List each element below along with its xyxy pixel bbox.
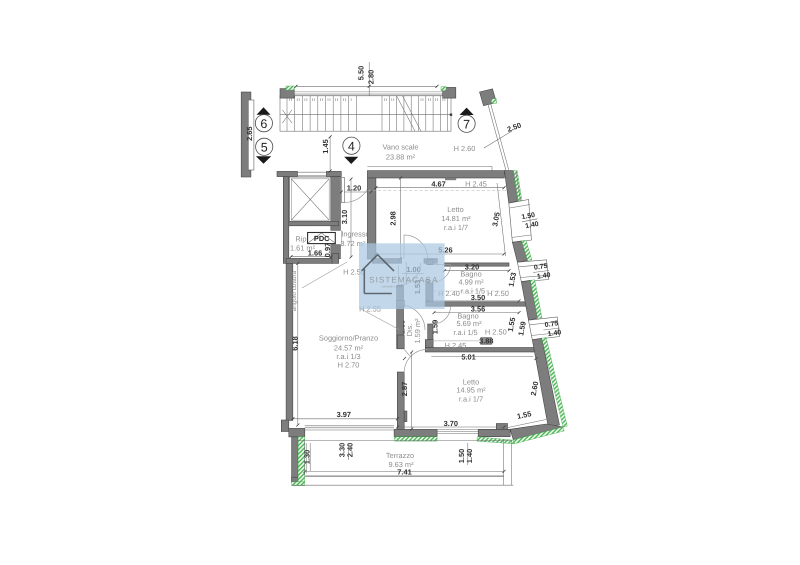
- svg-text:PDC: PDC: [314, 234, 330, 243]
- svg-text:Letto: Letto: [447, 205, 463, 214]
- svg-text:14.81 m²: 14.81 m²: [441, 214, 471, 223]
- svg-text:1.45: 1.45: [321, 139, 330, 153]
- svg-text:H 2.45: H 2.45: [465, 179, 487, 188]
- svg-text:4: 4: [348, 139, 355, 153]
- svg-text:0.97: 0.97: [323, 243, 332, 257]
- svg-text:Terrazzo: Terrazzo: [386, 451, 414, 460]
- svg-text:H 2.50: H 2.50: [485, 327, 507, 336]
- svg-text:4.67: 4.67: [431, 179, 445, 188]
- svg-text:Vano scale: Vano scale: [382, 143, 418, 152]
- svg-text:7: 7: [463, 117, 470, 131]
- svg-text:4.99 m²: 4.99 m²: [458, 278, 484, 287]
- svg-text:r.a.i 1/7: r.a.i 1/7: [459, 395, 483, 404]
- svg-text:H 2.60: H 2.60: [454, 144, 476, 153]
- svg-text:angolo cottura: angolo cottura: [291, 270, 298, 311]
- svg-text:SISTEMACASA: SISTEMACASA: [369, 276, 438, 285]
- svg-text:2.98: 2.98: [389, 211, 398, 225]
- svg-text:2.40: 2.40: [345, 443, 354, 457]
- svg-text:1.20: 1.20: [347, 184, 361, 193]
- svg-text:3.88: 3.88: [479, 337, 493, 346]
- svg-text:r.a.i 1/7: r.a.i 1/7: [444, 223, 468, 232]
- svg-text:1.40: 1.40: [465, 449, 474, 463]
- svg-text:r.a.i 1/5: r.a.i 1/5: [453, 328, 477, 337]
- svg-text:6.18: 6.18: [291, 336, 300, 350]
- svg-text:5.69 m²: 5.69 m²: [456, 319, 482, 328]
- svg-text:2.65: 2.65: [245, 127, 254, 141]
- svg-text:H 2.50: H 2.50: [487, 289, 509, 298]
- svg-text:3.10: 3.10: [340, 210, 349, 224]
- svg-text:2.87: 2.87: [400, 382, 409, 396]
- svg-text:H 2.45: H 2.45: [445, 341, 467, 350]
- svg-text:IMMOBILIARE: IMMOBILIARE: [382, 285, 404, 288]
- svg-text:1.66: 1.66: [308, 249, 322, 258]
- svg-text:5.50: 5.50: [357, 66, 366, 80]
- svg-text:Rip.: Rip.: [295, 235, 308, 244]
- svg-text:3.97: 3.97: [337, 410, 351, 419]
- svg-text:7.41: 7.41: [397, 467, 411, 476]
- svg-text:14.95 m²: 14.95 m²: [456, 386, 486, 395]
- svg-text:5: 5: [261, 140, 268, 154]
- svg-text:23.88 m²: 23.88 m²: [386, 153, 416, 162]
- svg-text:3.70: 3.70: [444, 419, 458, 428]
- svg-text:1.59 m²: 1.59 m²: [413, 318, 422, 344]
- svg-text:Ingresso: Ingresso: [341, 230, 369, 239]
- svg-text:Soggiorno/Pranzo: Soggiorno/Pranzo: [319, 334, 378, 343]
- svg-text:2.80: 2.80: [366, 70, 375, 84]
- svg-text:6: 6: [260, 117, 267, 131]
- svg-text:H 2.70: H 2.70: [338, 361, 360, 370]
